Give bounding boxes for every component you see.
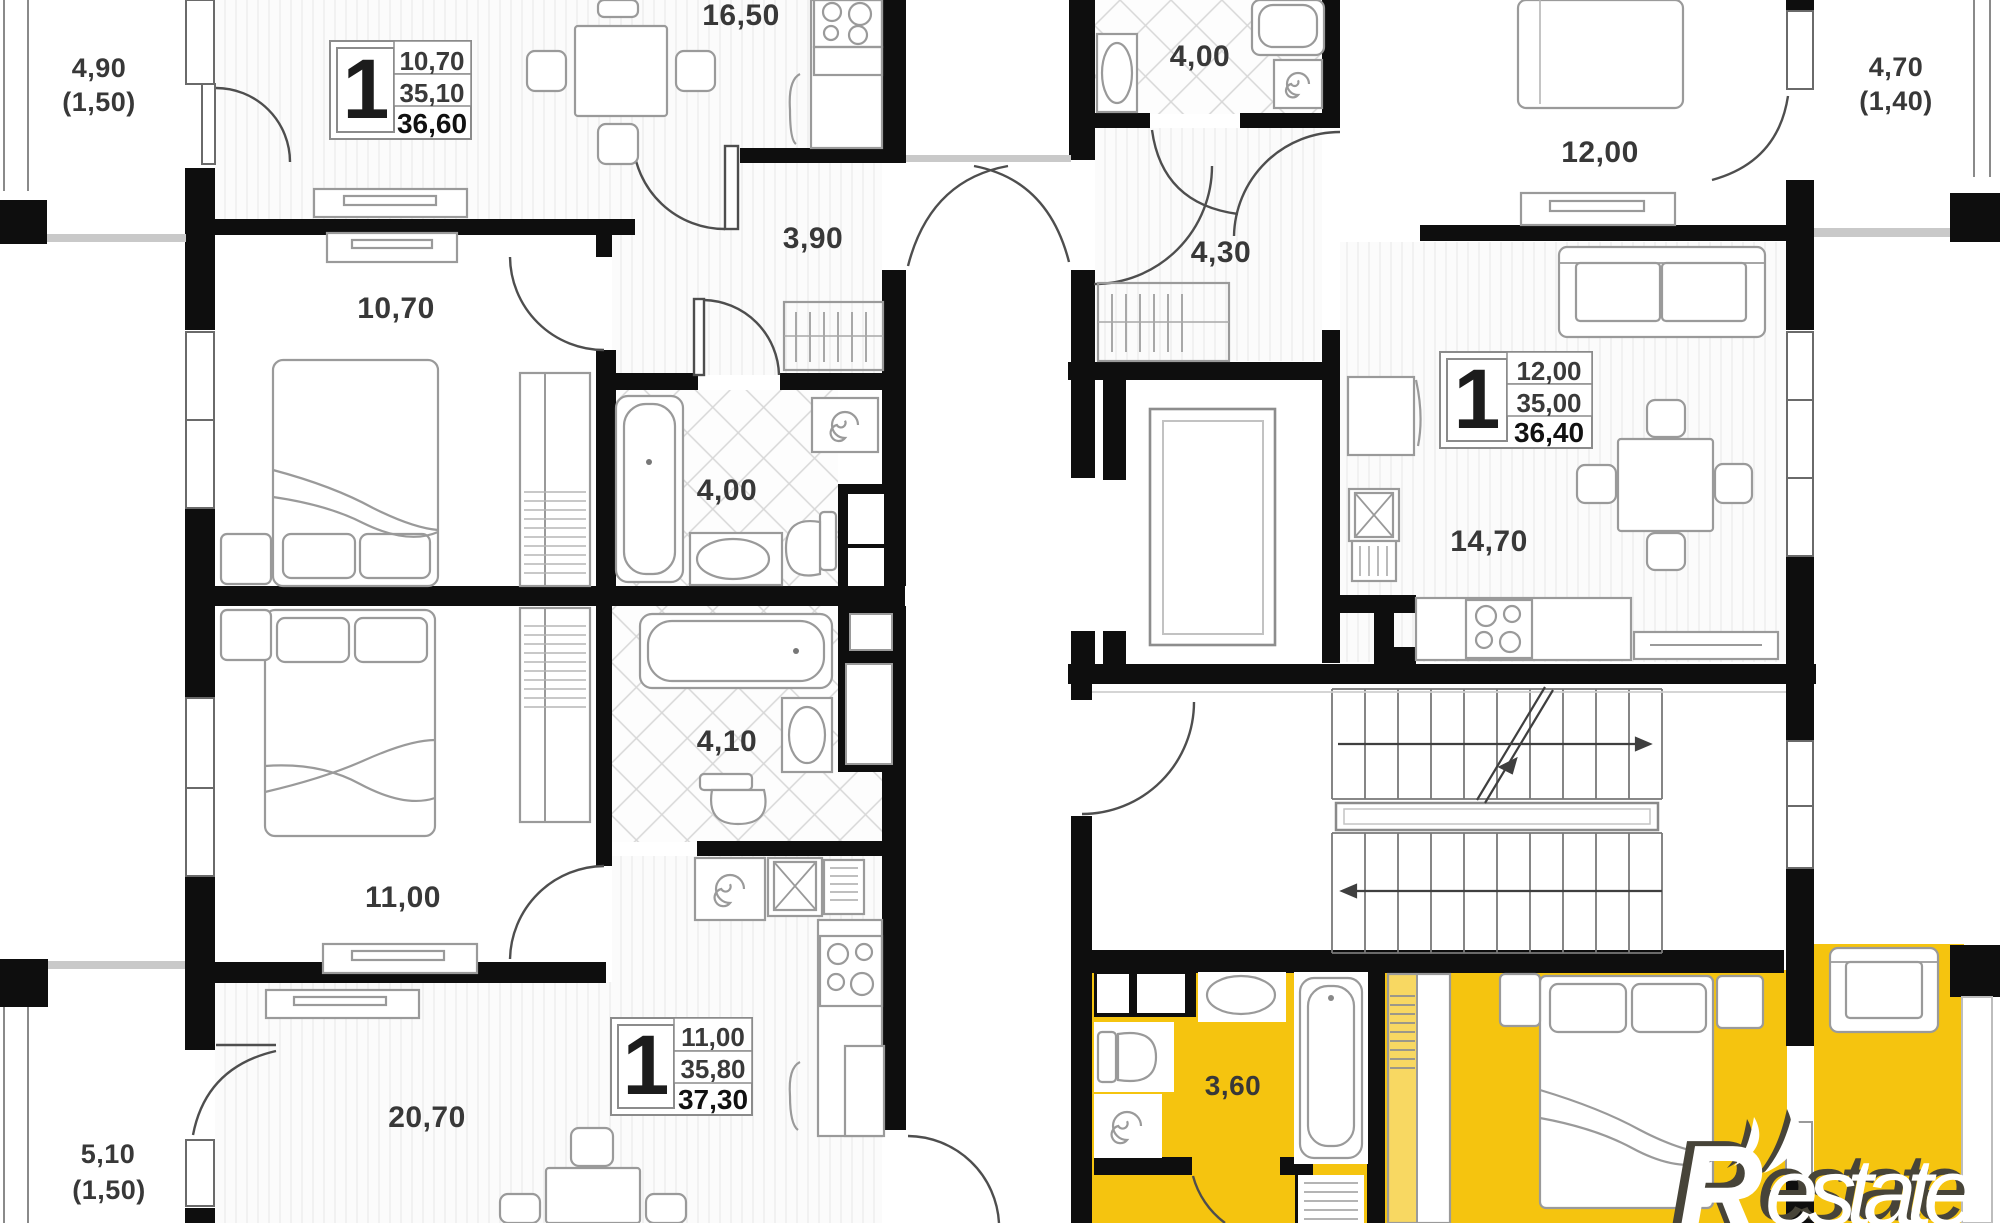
svg-text:4,70: 4,70 (1869, 52, 1924, 82)
svg-text:4,90: 4,90 (72, 53, 127, 83)
svg-text:14,70: 14,70 (1450, 525, 1528, 558)
svg-text:20,70: 20,70 (388, 1101, 466, 1134)
svg-text:4,10: 4,10 (697, 725, 757, 758)
svg-text:10,70: 10,70 (357, 292, 435, 325)
svg-text:1: 1 (623, 1018, 670, 1112)
svg-text:35,10: 35,10 (399, 78, 464, 108)
svg-text:4,30: 4,30 (1191, 236, 1251, 269)
svg-text:12,00: 12,00 (1516, 356, 1581, 386)
svg-text:3,60: 3,60 (1205, 1070, 1262, 1101)
svg-text:16,50: 16,50 (702, 0, 780, 32)
svg-text:(1,50): (1,50) (72, 1175, 146, 1205)
svg-text:1: 1 (343, 42, 390, 136)
svg-text:36,40: 36,40 (1514, 417, 1584, 448)
svg-text:4,00: 4,00 (1170, 40, 1230, 73)
svg-text:1: 1 (1454, 352, 1501, 446)
svg-text:(1,40): (1,40) (1859, 86, 1933, 116)
svg-text:5,10: 5,10 (81, 1139, 136, 1169)
svg-text:estate: estate (1765, 1139, 1973, 1223)
svg-text:11,00: 11,00 (365, 881, 441, 914)
svg-text:35,80: 35,80 (680, 1054, 745, 1084)
svg-text:36,60: 36,60 (397, 108, 467, 139)
svg-text:10,70: 10,70 (399, 46, 464, 76)
svg-text:4,00: 4,00 (697, 474, 757, 507)
svg-text:11,00: 11,00 (681, 1022, 745, 1052)
svg-text:3,90: 3,90 (783, 222, 843, 255)
svg-text:35,00: 35,00 (1516, 388, 1581, 418)
svg-text:(1,50): (1,50) (62, 87, 136, 117)
svg-text:12,00: 12,00 (1561, 136, 1639, 169)
svg-text:37,30: 37,30 (678, 1084, 748, 1115)
svg-text:R: R (1677, 1118, 1763, 1223)
